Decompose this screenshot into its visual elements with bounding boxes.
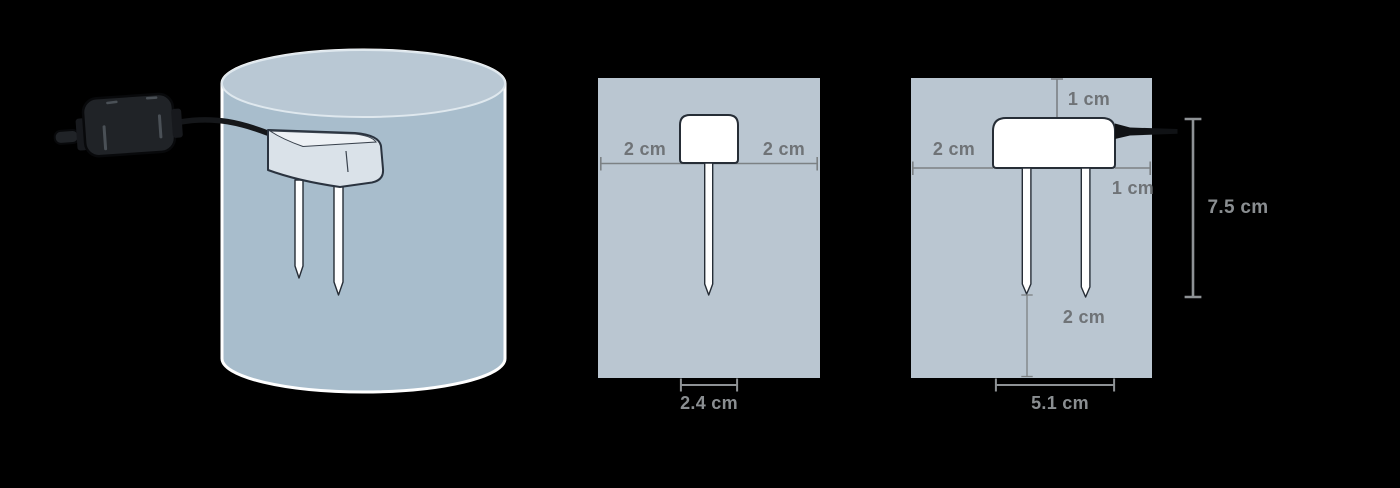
dim-label-pin-clearance: 2 cm [1063, 307, 1105, 327]
dim-label-right-offset: 1 cm [1112, 178, 1154, 198]
dim-label-total-height: 7.5 cm [1208, 197, 1269, 218]
dim-label-left-width: 2 cm [933, 139, 975, 159]
adapter-slot-right [159, 116, 160, 137]
sensor-pin-right [334, 182, 343, 295]
adapter-notch-right [147, 98, 156, 99]
adapter-plug-stub [54, 130, 79, 145]
dim-label-top-offset: 1 cm [1068, 89, 1110, 109]
sensor-head-front [680, 115, 738, 163]
sensor-pin-right [1081, 168, 1090, 297]
dim-label-right-width: 2 cm [763, 139, 805, 159]
side-view-diagram: 1 cm 2 cm 1 cm 7.5 cm 2 cm 5.1 cm [890, 60, 1290, 420]
sensor-head-side [993, 118, 1115, 168]
pot-illustration [30, 30, 530, 420]
adapter-slot-left [104, 127, 106, 149]
adapter-notch-left [107, 102, 116, 103]
sensor-pin-left [295, 180, 303, 278]
dim-label-head-width: 2.4 cm [680, 393, 738, 413]
dim-label-left-width: 2 cm [624, 139, 666, 159]
adapter-body [82, 93, 176, 157]
sensor-pin-left [1022, 168, 1031, 294]
adapter-collar-right [171, 108, 183, 138]
power-adapter [52, 92, 184, 159]
pot-rim-top [222, 50, 505, 117]
sensor-dimensions-figure: 2 cm 2 cm 2.4 cm 1 cm 2 cm [0, 0, 1400, 488]
front-view-diagram: 2 cm 2 cm 2.4 cm [580, 60, 840, 420]
sensor-pin-front [705, 163, 713, 295]
dim-label-head-width: 5.1 cm [1031, 393, 1089, 413]
